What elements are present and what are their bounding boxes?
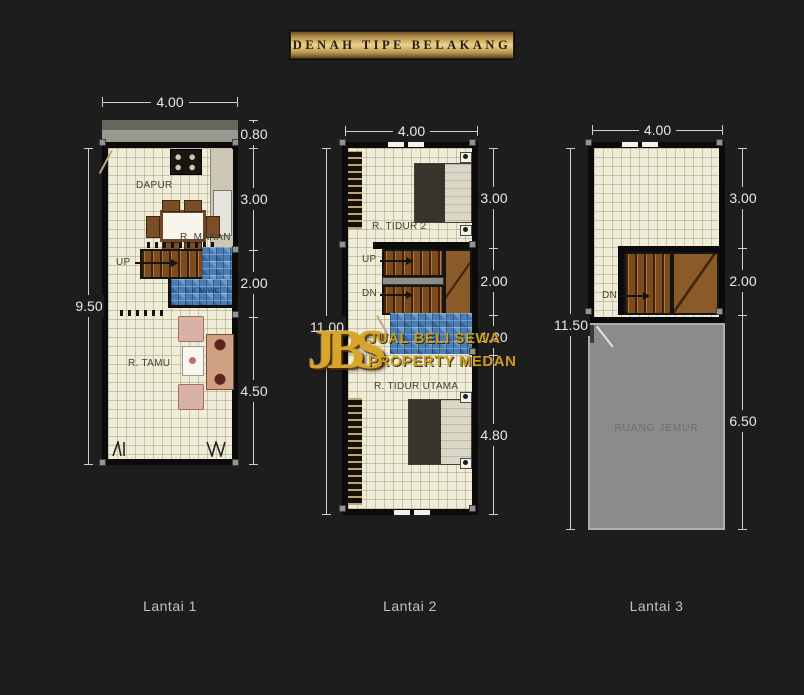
down-arrow-icon (380, 294, 406, 296)
floor3-width-dimension: 4.00 (592, 123, 723, 137)
dim-tick (489, 315, 498, 316)
floor2-segment-value: 1.20 (478, 326, 509, 348)
dim-tick (84, 464, 93, 465)
floorplan-poster: DENAH TIPE BELAKANG 4.00 DAPUR R. MAKAN … (0, 0, 804, 695)
dining-chair (162, 200, 180, 212)
floor3-height-value: 11.50 (552, 314, 590, 336)
floor3-width-value: 4.00 (639, 123, 676, 137)
wall-junction (585, 139, 592, 146)
floor3-label: Lantai 3 (588, 598, 725, 614)
dim-line (189, 102, 237, 103)
floor3-service-area: RUANG JEMUR (588, 323, 725, 530)
title-banner: DENAH TIPE BELAKANG (290, 31, 514, 59)
floor3-segment-value: 2.00 (727, 270, 758, 292)
dining-chair (146, 216, 160, 238)
floor1-plan: DAPUR R. MAKAN UP K.M/WC R. TAMU (102, 142, 238, 465)
dim-tick (489, 148, 498, 149)
up-arrow-icon (135, 262, 171, 264)
armchair (178, 384, 204, 410)
wall-junction (469, 348, 476, 355)
dim-tick (84, 148, 93, 149)
stair-label-up: UP (116, 257, 131, 268)
dim-tick (322, 148, 331, 149)
wall-junction (339, 139, 346, 146)
floor2-segment-value: 4.80 (478, 424, 509, 446)
room-label-dapur: DAPUR (136, 180, 173, 191)
dim-tick (489, 355, 498, 356)
sofa (206, 334, 234, 390)
floor1-segment-value: 0.80 (238, 123, 269, 145)
interior-wall (373, 242, 472, 249)
floor1-width-value: 4.00 (151, 95, 188, 109)
dim-tick (489, 248, 498, 249)
floor2-height-value: 11.00 (308, 316, 346, 338)
door-leaf (376, 315, 390, 337)
floor2-label: Lantai 2 (342, 598, 478, 614)
stairs-down-flight (382, 285, 444, 315)
window-symbol (110, 441, 134, 457)
floor1-height-value: 9.50 (73, 295, 104, 317)
window-gap (388, 142, 404, 147)
dim-line (676, 130, 722, 131)
bed (408, 399, 472, 465)
dim-line (103, 102, 151, 103)
bed-blanket (415, 164, 445, 222)
wall-junction (469, 241, 476, 248)
door-leaf (596, 326, 614, 348)
planter-strip (348, 398, 362, 505)
floor1-segment-value: 4.50 (238, 380, 269, 402)
stairs-down-flight (624, 252, 672, 315)
bathroom-tiles (202, 247, 232, 279)
dining-chair (184, 200, 202, 212)
bathroom-tiles (390, 313, 472, 354)
stove-icon (170, 149, 202, 175)
dim-tick (249, 148, 258, 149)
window-gap (408, 142, 424, 147)
room-label-jemur: RUANG JEMUR (590, 423, 723, 434)
wall-junction (232, 311, 239, 318)
armchair (178, 316, 204, 342)
room-label-tidur2: R. TIDUR 2 (372, 221, 427, 232)
floor3-left-dimension (570, 148, 571, 530)
floor3-segment-value: 3.00 (727, 187, 758, 209)
floor1-segment-value: 2.00 (238, 272, 269, 294)
stair-landing (672, 252, 719, 315)
dim-line (593, 130, 639, 131)
down-arrow-icon (619, 295, 643, 297)
room-label-kmwc: K.M/WC (192, 288, 220, 295)
dim-tick (738, 148, 747, 149)
nightstand-lamp (460, 152, 472, 163)
door-leaf (99, 150, 113, 174)
wall-junction (232, 459, 239, 466)
floor2-width-dimension: 4.00 (345, 124, 478, 138)
floor1-width-dimension: 4.00 (102, 95, 238, 109)
dim-tick (738, 315, 747, 316)
window-gap (642, 142, 658, 147)
room-label-tidur-utama: R. TIDUR UTAMA (374, 381, 458, 392)
window-gap (622, 142, 638, 147)
wall-junction (716, 139, 723, 146)
window-gap (414, 510, 430, 515)
dim-tick (738, 248, 747, 249)
wall-junction (339, 505, 346, 512)
wall-junction (469, 505, 476, 512)
bed-mattress (441, 400, 471, 464)
dim-tick (249, 464, 258, 465)
dim-tick (237, 97, 238, 107)
dim-tick (566, 529, 575, 530)
wardrobe-shelving (348, 151, 362, 229)
dim-tick (489, 514, 498, 515)
floor3-plan: DN (588, 142, 725, 323)
wall-junction (99, 459, 106, 466)
floor2-plan: R. TIDUR 2 UP DN R. TIDUR UTAMA (342, 142, 478, 515)
stair-label-dn: DN (362, 288, 377, 299)
nightstand-lamp (460, 392, 472, 403)
floor3-segment-value: 6.50 (727, 410, 758, 432)
dim-tick (322, 514, 331, 515)
dim-line (346, 131, 393, 132)
wall-junction (339, 241, 346, 248)
coffee-table (182, 346, 204, 376)
window-gap (394, 510, 410, 515)
floor2-segment-value: 2.00 (478, 270, 509, 292)
poster-title: DENAH TIPE BELAKANG (293, 38, 511, 53)
dim-tick (249, 250, 258, 251)
dim-tick (477, 126, 478, 136)
dim-tick (249, 317, 258, 318)
nightstand-lamp (460, 225, 472, 236)
stair-label-up: UP (362, 254, 377, 265)
floor2-width-value: 4.00 (393, 124, 430, 138)
bed-blanket (409, 400, 441, 464)
dim-tick (722, 125, 723, 135)
nightstand-lamp (460, 458, 472, 469)
bed-mattress (445, 164, 471, 222)
dim-tick (738, 529, 747, 530)
wall-junction (232, 246, 239, 253)
bed (414, 163, 472, 223)
stairs-up-flight (382, 249, 444, 277)
hatch-strip (120, 310, 168, 316)
door-slot (590, 325, 594, 343)
stair-landing (444, 249, 472, 315)
stair-label-dn: DN (602, 290, 617, 301)
dim-line (430, 131, 477, 132)
floor1-label: Lantai 1 (102, 598, 238, 614)
dim-tick (249, 120, 258, 121)
wall-junction (716, 308, 723, 315)
up-arrow-icon (380, 260, 406, 262)
window-symbol (204, 441, 228, 457)
stair-rail (382, 277, 444, 285)
wall-junction (99, 139, 106, 146)
wall-junction (469, 139, 476, 146)
room-label-tamu: R. TAMU (128, 358, 170, 369)
floor1-segment-value: 3.00 (238, 188, 269, 210)
floor2-segment-value: 3.00 (478, 187, 509, 209)
dim-tick (566, 148, 575, 149)
